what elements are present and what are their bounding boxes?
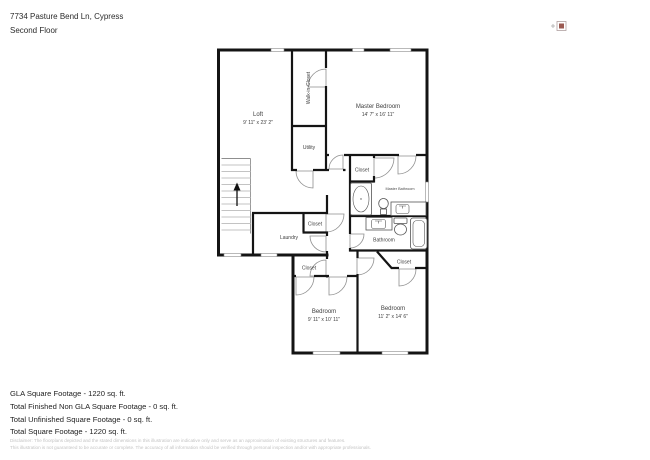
room-label: Bedroom	[312, 309, 336, 315]
window	[382, 351, 408, 354]
room-label-master-bathroom: Master Bathroom	[385, 187, 414, 191]
hall-bathroom-fixtures	[366, 218, 427, 250]
door-arc	[310, 236, 326, 252]
door-arc	[296, 277, 314, 295]
room-label-hall-closet: Closet	[302, 266, 317, 272]
disclaimer-line-2: This illustration is not guaranteed to b…	[10, 444, 371, 451]
room-label: Master Bedroom	[356, 104, 400, 110]
door-arc	[350, 234, 364, 248]
room-label-laundry: Laundry	[280, 235, 299, 241]
door-arc	[374, 158, 394, 178]
disclaimer-line-1: Disclaimer: The floorplans depicted and …	[10, 437, 371, 444]
door-arc	[398, 156, 416, 174]
pedestal-sink-icon	[379, 199, 389, 215]
room-dims: 9' 11" x 23' 2"	[243, 120, 273, 126]
door-arc	[357, 258, 374, 275]
room-dims: 9' 11" x 10' 11"	[308, 317, 340, 323]
door-arc	[329, 155, 343, 169]
vanity-sink-icon	[391, 202, 426, 216]
window	[425, 182, 428, 202]
room-bedroom-left: Bedroom 9' 11" x 10' 11"	[308, 309, 340, 323]
bathtub-icon	[351, 183, 372, 215]
room-label-laundry-closet: Closet	[308, 222, 323, 228]
disclaimer: Disclaimer: The floorplans depicted and …	[10, 437, 371, 451]
room-label: Bedroom	[381, 306, 405, 312]
room-master-bedroom: Master Bedroom 14' 7" x 16' 11"	[356, 104, 400, 118]
stair-edge	[222, 159, 251, 234]
summary-line-non-gla: Total Finished Non GLA Square Footage - …	[10, 401, 178, 414]
room-label-utility: Utility	[303, 145, 316, 151]
room-dims: 11' 2" x 14' 6"	[378, 314, 408, 320]
room-label-master-closet: Closet	[355, 168, 370, 174]
window	[353, 48, 365, 51]
floorplan-page: 7734 Pasture Bend Ln, Cypress Second Flo…	[0, 0, 650, 460]
window	[261, 253, 277, 256]
room-label-walk-in-closet: Walk-in-Closet	[306, 71, 312, 104]
room-loft: Loft 9' 11" x 23' 2"	[243, 112, 273, 126]
door-arc	[326, 214, 344, 232]
stairs	[222, 159, 251, 234]
window	[271, 48, 284, 51]
stair-treads	[222, 165, 251, 230]
up-arrow-icon	[234, 183, 241, 207]
bathtub-icon	[411, 218, 428, 249]
counter-sink-icon	[366, 218, 392, 231]
door-arc	[399, 269, 416, 286]
door-arc	[296, 171, 313, 188]
window	[390, 48, 411, 51]
door-arc	[329, 277, 347, 295]
toilet-icon	[394, 218, 407, 235]
summary-line-unfinished: Total Unfinished Square Footage - 0 sq. …	[10, 414, 178, 427]
room-label: Loft	[253, 112, 263, 118]
square-footage-summary: GLA Square Footage - 1220 sq. ft. Total …	[10, 388, 178, 439]
window	[224, 253, 241, 256]
window	[313, 351, 340, 354]
room-bedroom-right: Bedroom 11' 2" x 14' 6"	[378, 306, 408, 320]
room-dims: 14' 7" x 16' 11"	[362, 112, 395, 118]
room-label-bathroom: Bathroom	[373, 238, 395, 244]
room-label-bedroom-right-closet: Closet	[397, 260, 412, 266]
summary-line-gla: GLA Square Footage - 1220 sq. ft.	[10, 388, 178, 401]
